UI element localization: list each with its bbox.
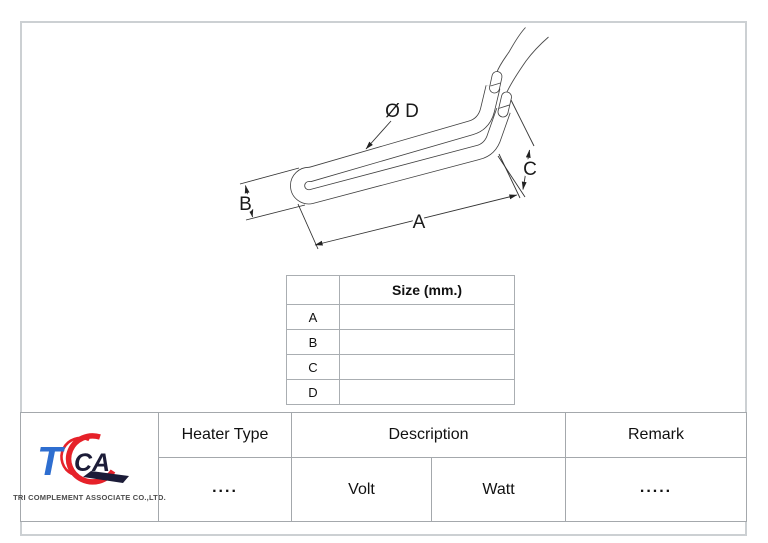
size-table-corner-cell bbox=[287, 276, 339, 304]
heater-type-header: Heater Type bbox=[158, 413, 291, 457]
size-row-label-d: D bbox=[287, 379, 339, 404]
remark-header: Remark bbox=[565, 413, 746, 457]
tca-logo-graphic: T CA bbox=[34, 432, 146, 492]
dim-b-extension-bottom bbox=[246, 205, 305, 220]
size-table: Size (mm.) A B C D bbox=[286, 275, 515, 405]
heater-type-dots: .... bbox=[212, 479, 238, 497]
company-logo: T CA TRI COMPLEMENT ASSOCIATE CO.,LTD. bbox=[21, 413, 158, 521]
volt-cell: Volt bbox=[291, 457, 431, 521]
size-row-value-d bbox=[339, 379, 514, 404]
remark-dots: ..... bbox=[640, 479, 672, 497]
description-header: Description bbox=[291, 413, 565, 457]
terminal-pin-1-fill bbox=[495, 77, 498, 89]
size-row-value-a bbox=[339, 304, 514, 329]
size-table-header: Size (mm.) bbox=[339, 276, 514, 304]
logo-letter-t: T bbox=[37, 438, 65, 484]
size-row-label-c: C bbox=[287, 354, 339, 379]
dim-b-extension-top bbox=[240, 168, 299, 184]
dim-label-height: C bbox=[523, 159, 537, 180]
size-row-label-b: B bbox=[287, 329, 339, 354]
dim-a-extension-left bbox=[298, 204, 318, 249]
size-row-value-b bbox=[339, 329, 514, 354]
watt-cell: Watt bbox=[431, 457, 565, 521]
dim-c-extension-top bbox=[511, 100, 534, 146]
dim-a-extension-right bbox=[499, 154, 520, 198]
lead-wire-1 bbox=[497, 28, 526, 74]
dim-label-diameter: Ø D bbox=[385, 101, 419, 122]
remark-value: ..... bbox=[565, 457, 746, 521]
heater-type-value: .... bbox=[158, 457, 291, 521]
terminal-pin-2-fill bbox=[503, 97, 507, 112]
dim-label-length: A bbox=[413, 212, 426, 233]
dim-label-width: B bbox=[239, 194, 252, 215]
company-name: TRI COMPLEMENT ASSOCIATE CO.,LTD. bbox=[13, 493, 166, 502]
title-block: T CA TRI COMPLEMENT ASSOCIATE CO.,LTD. H… bbox=[20, 412, 747, 522]
size-row-value-c bbox=[339, 354, 514, 379]
size-row-label-a: A bbox=[287, 304, 339, 329]
dim-c-extension-bottom bbox=[498, 156, 525, 197]
